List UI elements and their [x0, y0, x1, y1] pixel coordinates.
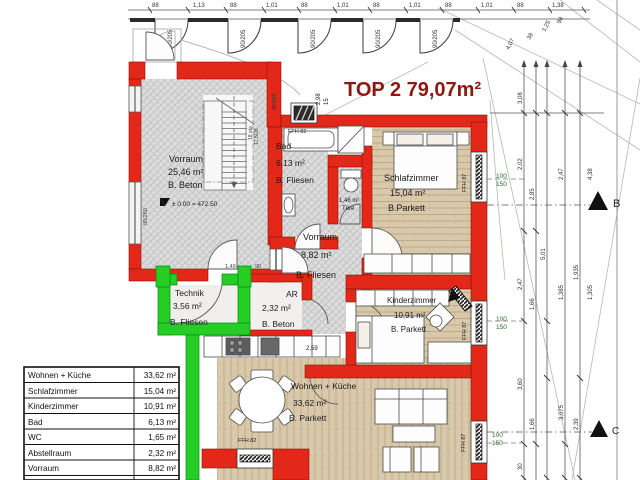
svg-text:88: 88: [152, 3, 159, 9]
svg-text:Kinderzimmer: Kinderzimmer: [28, 402, 79, 411]
svg-text:33,62 m²: 33,62 m²: [144, 371, 177, 380]
svg-text:1,49: 1,49: [225, 264, 236, 270]
svg-text:1,66: 1,66: [530, 418, 536, 430]
svg-text:B. Parkett: B. Parkett: [391, 325, 427, 334]
svg-text:Abstellraum: Abstellraum: [28, 449, 71, 458]
svg-text:150: 150: [496, 181, 507, 188]
svg-text:2,39: 2,39: [574, 418, 580, 430]
svg-text:Bad: Bad: [28, 418, 43, 427]
svg-text:1,935: 1,935: [574, 264, 580, 280]
svg-text:Vorraum: Vorraum: [169, 154, 203, 164]
svg-text:88: 88: [301, 3, 308, 9]
svg-text:100: 100: [496, 316, 507, 323]
svg-text:B. Beton: B. Beton: [262, 319, 295, 329]
svg-text:B. Fliesen: B. Fliesen: [170, 317, 208, 327]
svg-text:10,91 m²: 10,91 m²: [394, 311, 426, 320]
svg-text:1,305: 1,305: [588, 284, 594, 300]
svg-text:B.Parkett: B.Parkett: [388, 203, 426, 213]
svg-text:88: 88: [230, 3, 237, 9]
svg-text:2,47: 2,47: [559, 168, 565, 180]
svg-text:1,01: 1,01: [266, 3, 278, 9]
svg-text:1,66: 1,66: [530, 298, 536, 310]
svg-text:90/205: 90/205: [376, 29, 382, 48]
svg-text:Vorraum: Vorraum: [28, 464, 59, 473]
svg-text:10,91 m²: 10,91 m²: [144, 402, 177, 411]
svg-text:3,60: 3,60: [518, 378, 524, 390]
svg-text:FFH 87: FFH 87: [462, 322, 468, 340]
svg-text:B: B: [613, 198, 620, 210]
svg-text:90/205: 90/205: [311, 29, 317, 48]
svg-text:15: 15: [324, 98, 330, 105]
svg-text:90/205: 90/205: [433, 29, 439, 48]
svg-text:Türe: Türe: [342, 206, 355, 212]
svg-text:80/260: 80/260: [143, 208, 149, 225]
svg-text:8,82 m²: 8,82 m²: [301, 250, 332, 260]
svg-text:1,01: 1,01: [409, 3, 421, 9]
svg-text:Bad: Bad: [276, 141, 291, 151]
svg-text:25,46 m²: 25,46 m²: [168, 167, 204, 177]
svg-text:WC: WC: [28, 433, 42, 442]
svg-text:17,5/28: 17,5/28: [254, 128, 260, 145]
svg-text:B. Beton: B. Beton: [168, 180, 203, 190]
svg-text:2,02: 2,02: [518, 158, 524, 170]
svg-text:Wohnen + Küche: Wohnen + Küche: [291, 381, 357, 391]
svg-text:FFH 82: FFH 82: [288, 129, 306, 135]
svg-text:B. Fliesen: B. Fliesen: [296, 270, 336, 280]
svg-text:6,13 m²: 6,13 m²: [276, 158, 305, 168]
svg-text:2,59: 2,59: [306, 346, 318, 352]
svg-text:2,32 m²: 2,32 m²: [262, 303, 291, 313]
svg-text:C: C: [612, 426, 619, 437]
svg-text:TOP 2 79,07m²: TOP 2 79,07m²: [344, 79, 481, 101]
svg-text:88: 88: [445, 3, 452, 9]
svg-text:30: 30: [518, 463, 524, 470]
svg-text:90: 90: [255, 264, 261, 270]
svg-text:Schlafzimmer: Schlafzimmer: [384, 173, 439, 183]
svg-text:1,13: 1,13: [193, 3, 205, 9]
svg-text:3,56 m²: 3,56 m²: [173, 301, 202, 311]
svg-text:3,08: 3,08: [518, 92, 524, 104]
svg-text:88: 88: [373, 3, 380, 9]
svg-text:2,32 m²: 2,32 m²: [148, 449, 176, 458]
svg-text:Kinderzimmer: Kinderzimmer: [387, 296, 437, 305]
svg-text:3,075: 3,075: [559, 404, 565, 420]
svg-text:1,01: 1,01: [337, 3, 349, 9]
svg-text:1,385: 1,385: [559, 284, 565, 300]
svg-text:6,13 m²: 6,13 m²: [148, 418, 176, 427]
svg-text:90/205: 90/205: [241, 29, 247, 48]
svg-text:Vorraum: Vorraum: [303, 232, 337, 242]
svg-text:150: 150: [496, 324, 507, 331]
svg-text:AR: AR: [286, 289, 298, 299]
svg-text:15,04 m²: 15,04 m²: [390, 188, 426, 198]
svg-text:150: 150: [492, 440, 503, 447]
svg-text:FFH 87: FFH 87: [462, 174, 468, 192]
svg-text:4,38: 4,38: [588, 168, 594, 180]
svg-text:100: 100: [492, 432, 503, 439]
svg-text:33,62 m²: 33,62 m²: [293, 398, 327, 408]
svg-text:1,65 m²: 1,65 m²: [148, 433, 176, 442]
svg-text:1,46 m²: 1,46 m²: [339, 198, 359, 204]
svg-text:1,01: 1,01: [481, 3, 493, 9]
svg-text:5,01: 5,01: [541, 248, 547, 260]
svg-text:Wohnen + Küche: Wohnen + Küche: [28, 371, 91, 380]
svg-text:2,85: 2,85: [530, 188, 536, 200]
svg-text:B. Parkett: B. Parkett: [289, 413, 327, 423]
svg-text:Technik: Technik: [175, 288, 205, 298]
svg-text:± 0.00 = 472.50: ± 0.00 = 472.50: [172, 201, 218, 208]
svg-text:Schlafzimmer: Schlafzimmer: [28, 387, 78, 396]
svg-text:2,47: 2,47: [518, 278, 524, 290]
svg-text:1,38: 1,38: [552, 3, 564, 9]
svg-text:8,82 m²: 8,82 m²: [148, 464, 176, 473]
svg-text:88: 88: [517, 3, 524, 9]
svg-text:90/205: 90/205: [272, 93, 278, 110]
svg-text:FFH 82: FFH 82: [238, 438, 256, 444]
svg-text:15,04 m²: 15,04 m²: [144, 387, 177, 396]
svg-text:2,98: 2,98: [316, 93, 322, 105]
svg-text:B. Fliesen: B. Fliesen: [276, 175, 314, 185]
svg-text:FFH 87: FFH 87: [461, 434, 467, 452]
